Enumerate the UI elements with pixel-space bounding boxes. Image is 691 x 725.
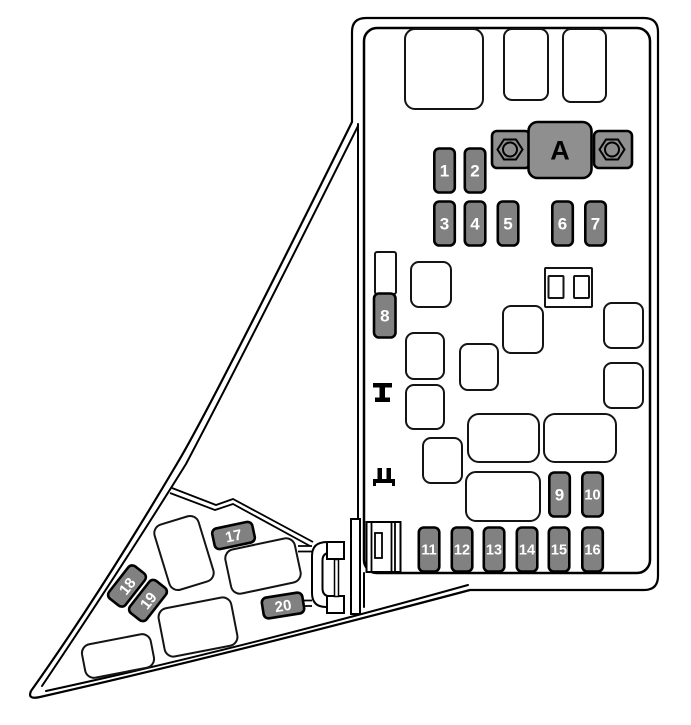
empty-slot xyxy=(411,262,451,307)
fuse-box-diagram: A 1 2 3 4 5 6 7 8 9 10 xyxy=(0,0,691,725)
fuse-13: 13 xyxy=(484,528,505,572)
fuse-box-diagram-svg: A 1 2 3 4 5 6 7 8 9 10 xyxy=(0,0,691,725)
empty-slot-wide xyxy=(468,414,539,462)
fuse-11: 11 xyxy=(419,528,440,572)
h-connector-slot xyxy=(545,268,592,307)
fuse-15: 15 xyxy=(549,528,570,572)
empty-slot xyxy=(406,333,444,379)
svg-text:8: 8 xyxy=(380,307,389,326)
empty-slot-wide xyxy=(544,414,616,462)
empty-slot xyxy=(503,306,543,353)
svg-text:9: 9 xyxy=(555,486,564,505)
empty-slot xyxy=(460,344,498,390)
latch-strip xyxy=(351,519,360,614)
svg-text:11: 11 xyxy=(421,543,436,559)
fuse-20: 20 xyxy=(261,592,305,619)
svg-text:12: 12 xyxy=(454,543,470,559)
svg-text:5: 5 xyxy=(503,215,512,234)
empty-slot xyxy=(604,363,643,408)
fuse-8: 8 xyxy=(374,252,396,338)
svg-text:17: 17 xyxy=(224,526,244,546)
fuse-9: 9 xyxy=(549,473,570,517)
svg-text:6: 6 xyxy=(558,215,567,234)
svg-text:14: 14 xyxy=(519,543,535,559)
top-relay-slots xyxy=(405,29,606,109)
svg-text:13: 13 xyxy=(486,543,502,559)
fuse-5: 5 xyxy=(498,202,519,246)
svg-text:4: 4 xyxy=(470,215,480,234)
fuse-14: 14 xyxy=(517,528,538,572)
svg-text:2: 2 xyxy=(470,162,479,181)
fuse-10: 10 xyxy=(582,473,603,517)
fuse-8-slot xyxy=(375,252,396,294)
svg-text:20: 20 xyxy=(274,597,293,616)
link-label: A xyxy=(550,136,570,166)
relay-slot-large xyxy=(405,29,483,109)
svg-text:3: 3 xyxy=(440,215,449,234)
empty-slot xyxy=(406,385,444,429)
relay-slot-mid xyxy=(504,29,548,100)
svg-text:10: 10 xyxy=(584,488,600,504)
svg-text:7: 7 xyxy=(591,215,600,234)
empty-slot xyxy=(604,303,643,348)
fuse-3: 3 xyxy=(434,202,455,246)
fuse-2: 2 xyxy=(465,149,486,193)
fuse-6: 6 xyxy=(552,202,573,246)
fuse-7: 7 xyxy=(585,202,606,246)
relay-slot-right xyxy=(563,29,606,102)
empty-slot-wide xyxy=(466,472,540,521)
empty-slot xyxy=(423,438,462,483)
fuse-1: 1 xyxy=(434,149,455,193)
fuse-4: 4 xyxy=(465,202,486,246)
svg-text:1: 1 xyxy=(440,162,449,181)
fuse-16: 16 xyxy=(582,528,603,572)
svg-text:15: 15 xyxy=(551,543,567,559)
svg-text:16: 16 xyxy=(584,543,600,559)
fuse-12: 12 xyxy=(452,528,473,572)
